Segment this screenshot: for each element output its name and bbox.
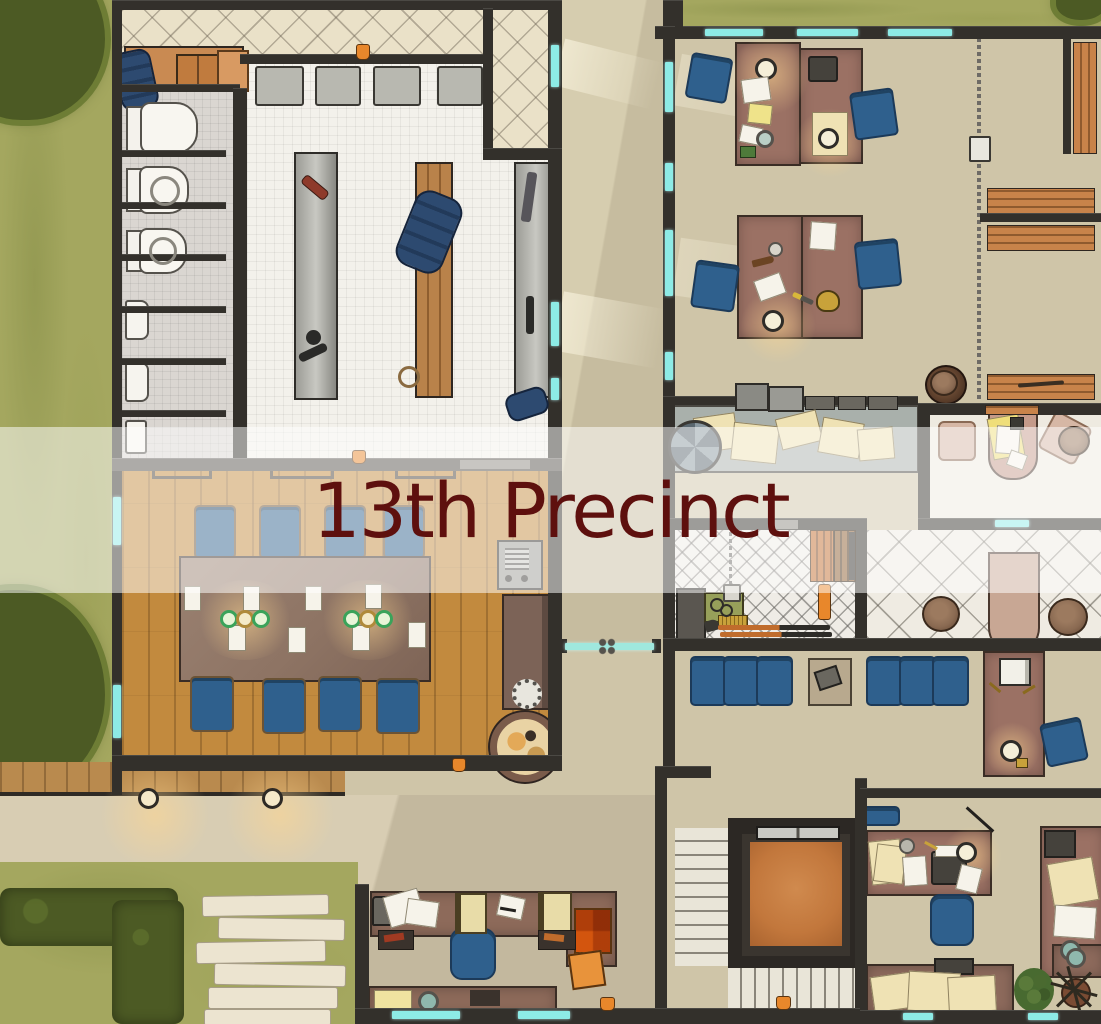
window-rb-top-1 — [705, 29, 763, 36]
window-rb-top-2 — [797, 29, 858, 36]
wall-offices-top — [860, 788, 1101, 798]
gear-clock — [512, 679, 542, 709]
mic-ring-green-1b — [252, 610, 270, 628]
stall-divider-1 — [122, 150, 226, 157]
stepping-stone-3 — [196, 940, 326, 964]
corner-magnifier — [1066, 948, 1086, 968]
toilet-2-seat — [150, 176, 180, 206]
sink-3 — [373, 66, 421, 106]
conference-chair-bottom-3 — [318, 676, 362, 732]
sink-4 — [437, 66, 483, 106]
staircase-vertical — [675, 828, 729, 966]
window-lb-right-1 — [551, 45, 559, 87]
figure-hat — [930, 370, 958, 396]
wall-pen-divider — [980, 213, 1101, 222]
bullpen-chair-2l — [690, 259, 740, 313]
stall-divider-4 — [122, 306, 226, 313]
desk2-lamp — [762, 310, 784, 332]
wall-lb-left — [112, 0, 122, 795]
front-desk-chair — [450, 928, 496, 980]
stepping-stone-4 — [214, 963, 346, 987]
notepad-bottom-3 — [352, 625, 370, 651]
tw-lamp — [956, 842, 977, 863]
file-box-1 — [735, 383, 769, 411]
waiting-chair-5 — [899, 656, 936, 706]
window-rb-left-4 — [665, 352, 673, 380]
desk1-notes — [747, 103, 773, 125]
jump-rope-coil — [398, 366, 420, 388]
typewriter-chair — [930, 894, 974, 946]
orange-folders-2 — [568, 950, 607, 990]
wall-pen-stub — [1063, 26, 1071, 154]
window-lobby-2 — [518, 1011, 570, 1019]
desk1-report — [740, 76, 771, 104]
desk2-typed-page — [809, 221, 837, 251]
elevator-cab — [750, 842, 842, 946]
bench-vertical — [1073, 42, 1097, 154]
side-desk-papers — [1053, 905, 1097, 940]
conference-wall-lamp — [452, 758, 466, 772]
wall-stair-top-stub — [655, 766, 711, 778]
elevator-doors — [756, 826, 840, 840]
briefcase-1 — [805, 396, 835, 410]
bottom-desk-paper-3 — [947, 975, 997, 1013]
interrogation-hat-left — [922, 596, 960, 632]
stepping-stone-6 — [204, 1009, 331, 1024]
conference-chair-bottom-4 — [376, 678, 420, 734]
potted-plant — [1014, 968, 1054, 1012]
waiting-chair-6 — [932, 656, 969, 706]
rifle-2 — [720, 632, 832, 637]
conference-chair-bottom-2 — [262, 678, 306, 734]
office-side-chair — [862, 806, 900, 826]
stepping-stone-2 — [218, 917, 345, 941]
lobby-lamp — [600, 997, 615, 1011]
chain-lock — [969, 136, 991, 162]
desk2b-kettle — [816, 290, 840, 312]
toilet-1-bowl — [140, 102, 198, 154]
bullpen-chair-1l — [684, 52, 733, 105]
bullpen-chair-2r — [854, 238, 903, 290]
notepad-bottom-2 — [288, 627, 306, 653]
notepad-bottom-4 — [408, 622, 426, 648]
side-desk-typewriter — [1044, 830, 1076, 858]
briefcase-2 — [838, 396, 866, 410]
wall-bench-sep — [122, 84, 240, 92]
side-desk-folder — [1047, 856, 1100, 907]
handcuffs-2 — [720, 604, 733, 617]
window-lobby-1 — [392, 1011, 460, 1019]
wall-stair-left — [655, 766, 667, 1024]
toilet-3-seat — [149, 237, 177, 265]
wall-conference-bottom — [112, 755, 562, 771]
notepad-bottom-1 — [228, 625, 246, 651]
window-rb-left-1 — [665, 62, 673, 112]
armory-cabinet — [676, 588, 706, 644]
window-lb-right-2 — [551, 302, 559, 346]
tw-letter — [902, 855, 928, 887]
wall-stair-right — [855, 778, 867, 1024]
desk1b-lamp — [818, 128, 839, 149]
sink-2 — [315, 66, 361, 106]
ledger-book-1 — [455, 893, 487, 934]
file-box-2 — [768, 386, 804, 412]
window-lb-left-2 — [113, 685, 121, 738]
window-rb-top-3 — [888, 29, 952, 36]
window-lb-right-3 — [551, 378, 559, 400]
stall-divider-6 — [122, 410, 226, 417]
bench-horizontal-1 — [987, 188, 1095, 215]
window-rb-left-2 — [665, 163, 673, 191]
window-rb-bottom-1 — [903, 1013, 933, 1020]
desk1b-typewriter — [808, 56, 838, 82]
waiting-chair-4 — [866, 656, 903, 706]
window-rb-left-3 — [665, 230, 673, 296]
wall-porchr-bottom — [483, 148, 562, 160]
corridor-lamp — [776, 996, 791, 1010]
grass-top-right — [655, 0, 1101, 27]
sink-1 — [255, 66, 304, 106]
wall-porchr-left — [483, 8, 493, 156]
rifle-1 — [718, 625, 830, 630]
wall-lobby-left — [355, 884, 369, 1024]
conference-chair-bottom-1 — [190, 676, 234, 732]
stepping-stone-1 — [202, 894, 329, 917]
desk1-magnifier — [756, 130, 774, 148]
table-mic-station-2 — [343, 608, 391, 626]
wall-armory-bottom — [663, 638, 1101, 651]
briefcase-3 — [868, 396, 898, 410]
front-papers-2 — [404, 898, 439, 928]
entry-porch-right — [485, 8, 550, 158]
orange-folders-1 — [574, 908, 612, 954]
desk1-green-book — [740, 146, 756, 158]
interrogation-hat-right — [1048, 598, 1088, 636]
desk2-cup — [768, 242, 783, 257]
stepping-stone-5 — [208, 987, 338, 1009]
dead-plant — [1050, 966, 1098, 1014]
bench-horizontal-2 — [987, 225, 1095, 251]
mic-ring-green-2b — [375, 610, 393, 628]
stall-divider-5 — [122, 358, 226, 365]
bullpen-chair-1r — [849, 87, 899, 141]
porch-lamp-2 — [262, 788, 283, 809]
precinct-map[interactable]: 13th Precinct — [0, 0, 1101, 1024]
table-mic-station-1 — [220, 608, 268, 626]
bench-horizontal-3 — [987, 374, 1095, 400]
map-title-banner: 13th Precinct — [0, 427, 1101, 593]
wall-rb-bottom — [860, 1010, 1101, 1024]
ledger-book-2 — [538, 892, 572, 934]
wall-restroom-right — [233, 88, 247, 460]
counter-mat — [470, 990, 500, 1006]
window-rb-bottom-2 — [1028, 1013, 1058, 1020]
interview-wall-shelf — [985, 405, 1039, 415]
duty-chair — [1039, 716, 1089, 768]
waiting-chair-1 — [690, 656, 727, 706]
waiting-chair-3 — [756, 656, 793, 706]
ashtray — [899, 838, 915, 854]
hedge-vertical — [112, 900, 184, 1024]
glass-door-hinge — [596, 637, 618, 655]
urinal-2 — [125, 362, 149, 402]
gym-wall-lamp — [356, 44, 370, 60]
map-title: 13th Precinct — [312, 466, 788, 555]
waiting-chair-2 — [723, 656, 760, 706]
porch-lamp-1 — [138, 788, 159, 809]
stall-divider-2 — [122, 202, 226, 209]
desk-stamp — [1016, 758, 1028, 768]
dumbbell-vertical — [526, 296, 534, 334]
kettlebell-dark — [306, 330, 321, 345]
card-file — [999, 658, 1031, 686]
